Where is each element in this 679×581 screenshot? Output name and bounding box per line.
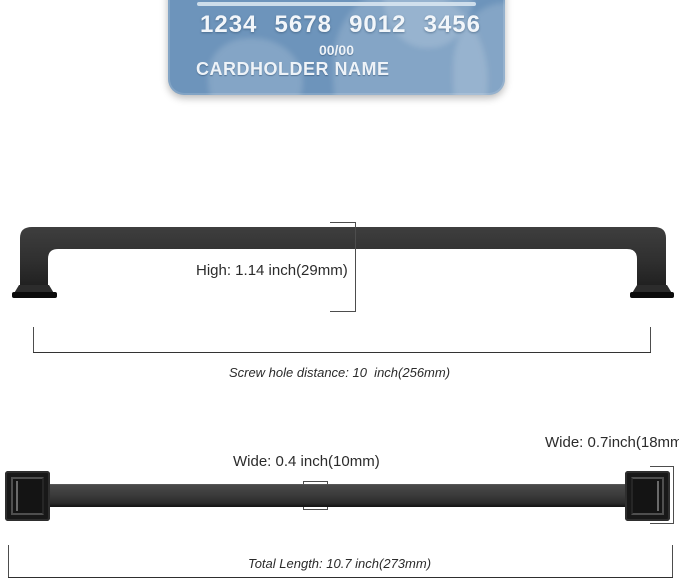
- height-dimension-tick-top: [330, 222, 356, 223]
- handle-front-outline: [20, 227, 666, 290]
- handle-top-bar: [48, 484, 628, 507]
- product-dimension-diagram: 1234 5678 9012 3456 00/00 CARDHOLDER NAM…: [0, 0, 679, 581]
- handle-right-base-top-view: [625, 471, 670, 521]
- card-number: 1234 5678 9012 3456: [200, 11, 481, 39]
- screw-hole-distance-label: Screw hole distance: 10 inch(256mm): [0, 365, 679, 380]
- handle-left-base-top-view: [5, 471, 50, 521]
- card-number-group: 3456: [424, 11, 481, 39]
- card-holder-name: CARDHOLDER NAME: [196, 59, 390, 80]
- end-width-tick-top: [650, 466, 674, 467]
- handle-right-base-inset: [631, 477, 664, 515]
- front-view-handle-graphic: [0, 190, 679, 320]
- card-number-group: 9012: [349, 11, 406, 39]
- card-number-group: 1234: [200, 11, 257, 39]
- end-width-tick-bottom: [650, 523, 674, 524]
- end-width-dimension-line: [673, 466, 674, 524]
- end-width-dimension-label: Wide: 0.7inch(18mm): [545, 434, 679, 451]
- credit-card-size-reference: 1234 5678 9012 3456 00/00 CARDHOLDER NAM…: [168, 0, 505, 95]
- card-number-group: 5678: [275, 11, 332, 39]
- card-expiry: 00/00: [168, 42, 505, 58]
- handle-left-base-highlight: [16, 481, 18, 511]
- card-stripe: [197, 2, 476, 6]
- screw-distance-tick-left: [33, 327, 34, 353]
- bar-width-dimension-label: Wide: 0.4 inch(10mm): [233, 453, 380, 470]
- total-length-line: [8, 577, 673, 578]
- height-dimension-line: [355, 222, 356, 312]
- handle-right-base-highlight: [657, 481, 659, 511]
- screw-distance-tick-right: [650, 327, 651, 353]
- handle-right-foot-base: [630, 292, 674, 298]
- screw-distance-line: [33, 352, 651, 353]
- handle-left-foot-base: [12, 292, 57, 298]
- total-length-dimension-label: Total Length: 10.7 inch(273mm): [0, 556, 679, 571]
- height-dimension-label: High: 1.14 inch(29mm): [196, 262, 348, 279]
- height-dimension-tick-bottom: [330, 311, 356, 312]
